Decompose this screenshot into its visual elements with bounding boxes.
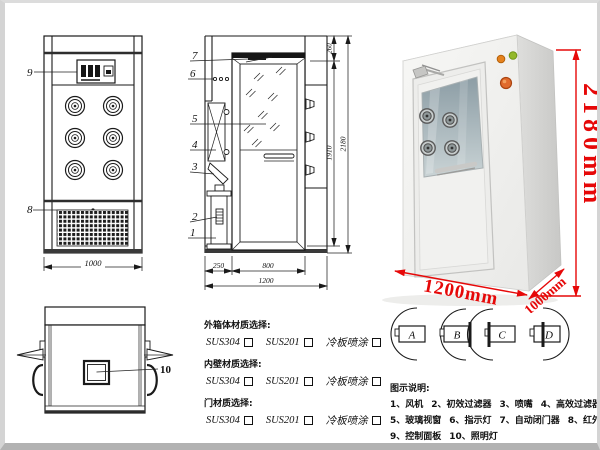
front-view-drawing: 9 8 1000 bbox=[15, 13, 185, 291]
photo-dim-height-text: 2180mm bbox=[578, 83, 600, 208]
legend-item: 7、自动闭门器 bbox=[500, 413, 560, 426]
legend-item: 1、风机 bbox=[390, 397, 423, 410]
svg-text:250: 250 bbox=[213, 261, 225, 270]
material-checkbox bbox=[304, 377, 313, 386]
door-type-b: B bbox=[440, 309, 470, 360]
side-label-5: 5 bbox=[192, 113, 198, 125]
material-checkbox bbox=[244, 338, 253, 347]
svg-text:1000: 1000 bbox=[85, 258, 103, 268]
door-type-d: D bbox=[530, 308, 569, 360]
control-panel bbox=[77, 60, 115, 83]
spec-sheet-page: 9 8 1000 bbox=[0, 0, 600, 450]
front-label-9: 9 bbox=[27, 67, 33, 79]
svg-text:1910: 1910 bbox=[325, 145, 334, 160]
svg-text:B: B bbox=[454, 330, 461, 342]
material-option: SUS201 bbox=[266, 337, 313, 348]
door-type-symbols: A B C D bbox=[390, 303, 575, 367]
material-option: 冷板喷涂 bbox=[326, 335, 381, 350]
material-option: 冷板喷涂 bbox=[326, 413, 381, 428]
height-dimensions: 260 1910 2180 bbox=[307, 36, 352, 253]
legend-title: 图示说明: bbox=[390, 381, 600, 394]
legend-item: 2、初效过滤器 bbox=[431, 397, 491, 410]
door-type-c: C bbox=[468, 309, 516, 360]
emergency-button bbox=[501, 78, 512, 89]
material-checkbox bbox=[372, 416, 381, 425]
svg-text:D: D bbox=[544, 330, 553, 342]
side-label-4: 4 bbox=[192, 139, 198, 151]
side-label-1: 1 bbox=[190, 227, 196, 239]
fan-box bbox=[208, 103, 229, 161]
material-section-title: 门材质选择: bbox=[204, 396, 388, 409]
legend-item: 9、控制面板 bbox=[390, 429, 441, 442]
door-section bbox=[232, 53, 305, 250]
legend-item: 8、红外线感应器 bbox=[568, 413, 600, 426]
top-view-drawing: 10 bbox=[10, 296, 205, 436]
material-option: SUS201 bbox=[266, 376, 313, 387]
material-option: SUS304 bbox=[206, 337, 253, 348]
material-selection: 外箱体材质选择: SUS304 SUS201 冷板喷涂 内壁材质选择: SUS3… bbox=[204, 318, 388, 435]
svg-text:2180: 2180 bbox=[339, 136, 348, 151]
product-photo: 2180mm 1200mm 1000mm bbox=[380, 8, 600, 313]
svg-text:800: 800 bbox=[262, 261, 274, 270]
legend: 图示说明: 1、风机 2、初效过滤器 3、喷嘴 4、高效过滤器 5、玻璃视窗 6… bbox=[390, 381, 600, 445]
ceiling-lamp bbox=[84, 361, 109, 384]
front-label-8: 8 bbox=[27, 204, 33, 216]
base-band bbox=[44, 249, 142, 254]
filter-column bbox=[207, 185, 231, 249]
indicator-light-orange bbox=[497, 55, 505, 63]
front-dim-1000: 1000 bbox=[44, 257, 142, 271]
material-checkbox bbox=[372, 377, 381, 386]
indicator-light-green bbox=[509, 52, 517, 60]
legend-item: 4、高效过滤器 bbox=[541, 397, 600, 410]
top-label-10: 10 bbox=[160, 364, 172, 376]
side-label-7: 7 bbox=[192, 50, 198, 62]
material-section-door: 门材质选择: SUS304 SUS201 冷板喷涂 bbox=[204, 396, 388, 428]
material-checkbox bbox=[304, 416, 313, 425]
material-option: SUS304 bbox=[206, 376, 253, 387]
material-section-title: 内壁材质选择: bbox=[204, 357, 388, 370]
material-section-inner: 内壁材质选择: SUS304 SUS201 冷板喷涂 bbox=[204, 357, 388, 389]
legend-item: 5、玻璃视窗 bbox=[390, 413, 441, 426]
material-option: 冷板喷涂 bbox=[326, 374, 381, 389]
svg-text:260: 260 bbox=[326, 43, 334, 54]
side-label-6: 6 bbox=[190, 68, 196, 80]
door-type-a: A bbox=[391, 308, 425, 360]
legend-item: 3、喷嘴 bbox=[500, 397, 533, 410]
material-checkbox bbox=[244, 377, 253, 386]
svg-text:C: C bbox=[498, 330, 506, 342]
material-checkbox bbox=[244, 416, 253, 425]
svg-text:1200: 1200 bbox=[259, 276, 274, 285]
width-dimensions: 250 800 1200 bbox=[205, 256, 327, 290]
material-section-title: 外箱体材质选择: bbox=[204, 318, 388, 331]
svg-text:A: A bbox=[408, 330, 416, 342]
material-checkbox bbox=[304, 338, 313, 347]
material-option: SUS304 bbox=[206, 415, 253, 426]
material-checkbox bbox=[372, 338, 381, 347]
indicator-lights bbox=[213, 77, 228, 80]
side-nozzles bbox=[306, 99, 314, 175]
side-view-drawing: 7 6 5 4 3 2 1 260 1910 2180 250 800 bbox=[180, 13, 370, 305]
legend-item: 6、指示灯 bbox=[449, 413, 491, 426]
legend-item: 10、照明灯 bbox=[449, 429, 498, 442]
door-swing-left bbox=[17, 341, 46, 395]
intake-grille bbox=[57, 210, 128, 246]
material-section-outer: 外箱体材质选择: SUS304 SUS201 冷板喷涂 bbox=[204, 318, 388, 350]
material-option: SUS201 bbox=[266, 415, 313, 426]
side-label-3: 3 bbox=[191, 161, 198, 173]
